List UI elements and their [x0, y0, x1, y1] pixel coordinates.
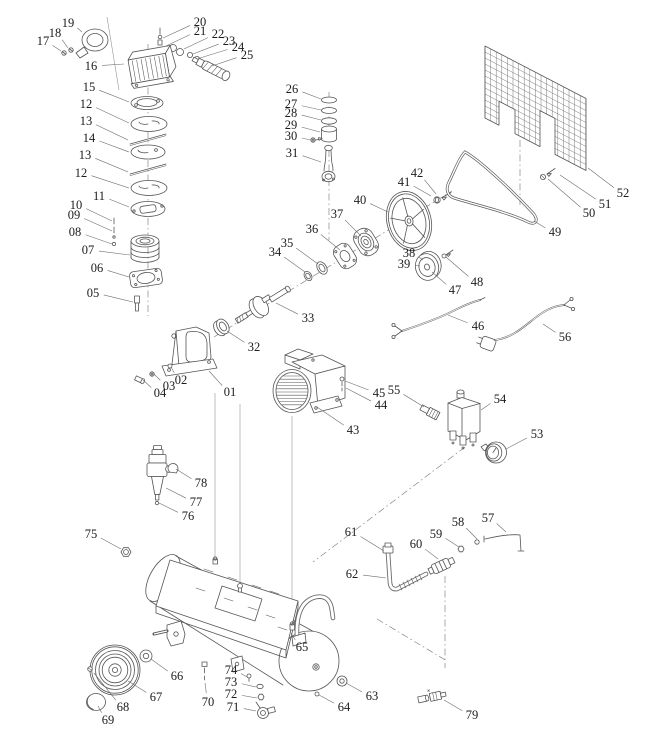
leader-line: [242, 684, 256, 687]
part-label-35: 35: [281, 236, 294, 250]
part-label-54: 54: [494, 392, 507, 406]
leader-line: [176, 469, 191, 479]
wheel-pin-part: [88, 667, 93, 672]
leader-line: [212, 58, 237, 66]
leader-line: [104, 295, 133, 302]
belt-guard-grille: [485, 46, 586, 171]
part-label-60: 60: [410, 537, 423, 551]
part-label-67: 67: [150, 690, 163, 704]
leader-line: [163, 26, 190, 38]
leader-line: [109, 199, 129, 207]
leader-line: [62, 40, 68, 48]
leader-line: [446, 538, 459, 547]
leader-line: [466, 528, 477, 539]
part-label-39: 39: [398, 257, 411, 271]
leader-line: [346, 388, 371, 401]
leader-line: [425, 549, 438, 559]
part-label-45: 45: [373, 386, 386, 400]
part-label-64: 64: [338, 700, 351, 714]
wrist-pin-part: [311, 138, 322, 143]
part-label-74: 74: [225, 663, 238, 677]
part-label-26: 26: [286, 82, 299, 96]
grille-grid-line: [555, 124, 586, 140]
leader-line: [276, 303, 298, 314]
leader-line: [345, 381, 369, 390]
part-label-25: 25: [241, 48, 254, 62]
cylinder-studs-part: [112, 218, 115, 246]
leader-line: [193, 44, 219, 54]
leader-line: [444, 700, 462, 711]
leader-line: [319, 695, 334, 703]
leader-line: [302, 138, 310, 140]
leader-line: [205, 683, 206, 693]
part-label-10: 10: [70, 198, 83, 212]
part-label-75: 75: [85, 527, 98, 541]
leader-line: [84, 218, 112, 231]
part-label-30: 30: [285, 129, 298, 143]
leader-line: [209, 371, 222, 386]
leader-line: [404, 394, 424, 407]
leader-line: [370, 204, 388, 212]
leader-line: [302, 115, 321, 120]
part-label-12: 12: [75, 166, 88, 180]
part-label-14: 14: [83, 131, 96, 145]
pressure-switch-part: [448, 390, 480, 449]
part-label-46: 46: [472, 319, 485, 333]
leader-line: [99, 141, 129, 152]
wheel-washer-part: [140, 650, 152, 662]
part-label-49: 49: [549, 225, 562, 239]
tank-part: [139, 549, 339, 691]
part-label-32: 32: [248, 340, 261, 354]
part-label-15: 15: [83, 80, 96, 94]
part-label-77: 77: [190, 495, 203, 509]
part-label-53: 53: [531, 427, 544, 441]
piston-part: [322, 126, 337, 142]
leader-line: [363, 575, 386, 578]
stud-part: [135, 296, 140, 311]
leader-line: [53, 45, 61, 51]
valve-plate-stack: [130, 97, 167, 217]
bearing-part: [211, 317, 232, 338]
part-label-07: 07: [82, 243, 95, 257]
part-label-59: 59: [430, 527, 443, 541]
leader-line: [506, 438, 527, 449]
part-label-40: 40: [354, 193, 367, 207]
part-label-61: 61: [345, 525, 358, 539]
leader-line: [448, 315, 468, 323]
leader-line: [151, 659, 168, 671]
axle-bolt-part: [202, 662, 207, 680]
part-label-02: 02: [175, 373, 188, 387]
leader-line: [108, 270, 129, 277]
leader-line: [166, 488, 186, 498]
part-label-13: 13: [80, 114, 93, 128]
connecting-rod-part: [322, 145, 335, 181]
part-label-17: 17: [37, 34, 50, 48]
grille-grid-line: [485, 100, 499, 107]
part-label-55: 55: [388, 383, 401, 397]
part-label-68: 68: [117, 700, 130, 714]
leader-line: [244, 709, 256, 711]
grille-grid-line: [555, 136, 586, 152]
leader-line: [159, 503, 178, 512]
leader-line: [302, 127, 320, 132]
crankshaft-part: [231, 279, 295, 330]
cylinder-head-part: [126, 45, 179, 89]
nut-part: [121, 548, 131, 557]
leader-line: [497, 524, 506, 532]
leader-line: [91, 176, 129, 188]
cap-part: [168, 464, 178, 473]
leader-line: [296, 248, 318, 264]
part-label-31: 31: [286, 146, 299, 160]
leader-line: [184, 38, 208, 49]
leader-line: [543, 324, 556, 332]
part-label-33: 33: [302, 311, 315, 325]
leader-line: [166, 35, 190, 46]
part-label-66: 66: [171, 669, 184, 683]
part-label-65: 65: [296, 640, 309, 654]
leader-line: [242, 695, 257, 698]
grille-grid-line: [485, 106, 499, 113]
leader-line: [302, 106, 321, 110]
part-label-79: 79: [466, 708, 479, 722]
leader-line: [102, 64, 124, 65]
check-valve-part: [427, 556, 456, 576]
pipe-fittings-part: [458, 535, 524, 552]
pressure-gauge-part: [481, 442, 507, 463]
part-label-04: 04: [154, 386, 167, 400]
v-belt-part: [447, 152, 536, 223]
leader-line: [346, 683, 362, 692]
part-label-43: 43: [347, 423, 360, 437]
part-label-47: 47: [449, 283, 462, 297]
grille-screw-part: [540, 169, 555, 180]
air-filter-part: [62, 29, 108, 58]
part-label-62: 62: [346, 567, 359, 581]
grille-grid-line: [485, 88, 540, 117]
part-label-21: 21: [194, 24, 207, 38]
leader-line: [101, 538, 121, 549]
part-label-06: 06: [91, 261, 104, 275]
oil-seal-part: [302, 270, 313, 282]
leader-line: [86, 209, 112, 221]
part-label-51: 51: [599, 197, 612, 211]
part-label-13: 13: [79, 148, 92, 162]
part-label-41: 41: [398, 175, 411, 189]
leader-line: [548, 179, 581, 207]
part-label-70: 70: [202, 695, 215, 709]
part-label-69: 69: [102, 713, 115, 727]
leader-line: [588, 168, 614, 188]
part-label-52: 52: [617, 186, 630, 200]
part-label-72: 72: [225, 687, 238, 701]
part-label-01: 01: [224, 385, 237, 399]
exploded-parts-diagram: 0102030405060708091011121314131215161718…: [0, 0, 649, 755]
part-label-08: 08: [69, 225, 82, 239]
leader-line: [345, 220, 361, 236]
part-label-18: 18: [49, 26, 62, 40]
leader-line: [77, 28, 82, 32]
leader-line: [95, 158, 128, 172]
exploded-parts-diagram-page: 0102030405060708091011121314131215161718…: [0, 0, 649, 755]
leader-line: [96, 108, 129, 123]
outlet-fitting-part: [417, 686, 447, 704]
leader-line: [154, 374, 160, 380]
leader-line: [481, 404, 490, 410]
part-label-11: 11: [93, 189, 105, 203]
part-label-63: 63: [366, 689, 379, 703]
grille-grid-line: [485, 112, 499, 119]
grille-grid-line: [555, 142, 586, 158]
part-label-36: 36: [306, 222, 319, 236]
leader-line: [560, 175, 596, 199]
leader-line: [284, 257, 305, 272]
part-label-57: 57: [482, 511, 495, 525]
pulley-screw-part: [442, 250, 453, 258]
part-label-73: 73: [225, 675, 238, 689]
leader-line: [321, 234, 340, 250]
part-label-44: 44: [375, 398, 388, 412]
crankcase-part: [162, 327, 217, 376]
part-label-50: 50: [583, 206, 596, 220]
leader-line: [99, 251, 130, 255]
leader-line: [446, 257, 468, 276]
part-label-48: 48: [471, 275, 484, 289]
leader-line: [96, 125, 128, 140]
grille-grid-line: [555, 130, 586, 146]
leader-line: [227, 331, 245, 342]
part-label-19: 19: [62, 16, 75, 30]
part-label-76: 76: [182, 509, 195, 523]
part-label-71: 71: [227, 700, 240, 714]
leader-line: [317, 407, 344, 425]
part-label-42: 42: [411, 166, 424, 180]
bearing-gasket-part: [331, 241, 360, 272]
part-label-78: 78: [195, 476, 208, 490]
part-label-12: 12: [80, 97, 93, 111]
part-label-37: 37: [331, 207, 344, 221]
cylinder-gasket-part: [129, 268, 163, 288]
leader-line: [361, 536, 384, 551]
part-label-58: 58: [452, 515, 465, 529]
leader-line: [302, 92, 321, 99]
drain-valve-group: [247, 674, 275, 719]
leader-line: [424, 180, 436, 194]
motor-part: [273, 349, 345, 413]
part-label-56: 56: [559, 330, 572, 344]
leader-line: [534, 221, 545, 228]
leader-line: [200, 50, 227, 58]
leader-line: [99, 90, 129, 102]
piston-rings-part: [322, 97, 337, 124]
cylinder-part: [131, 235, 159, 262]
part-label-16: 16: [85, 59, 98, 73]
pulley-part: [412, 249, 444, 283]
hub-cap-part: [87, 694, 106, 711]
handle-bolt-part: [191, 55, 232, 82]
regulator-part: [147, 446, 172, 505]
leader-line: [143, 380, 151, 388]
part-label-05: 05: [87, 286, 100, 300]
wheel-part: [90, 645, 140, 695]
leader-line: [303, 156, 321, 162]
